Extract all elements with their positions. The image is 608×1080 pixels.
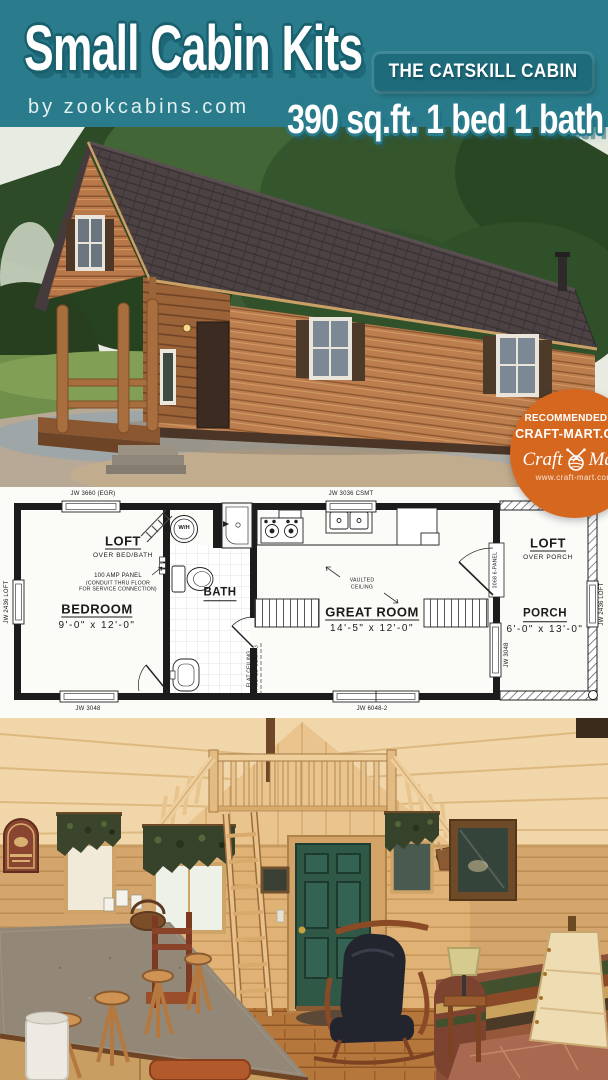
badge-recommended-by: RECOMMENDED BY <box>510 413 608 424</box>
window-right <box>384 811 440 892</box>
panel-note-sub2: FOR SERVICE CONNECTION) <box>79 587 157 592</box>
ceiling-cabinet <box>576 718 608 738</box>
logo-craft-text: Craft <box>522 449 562 471</box>
floor-plan: JW 3660 (EGR) JW 3036 CSMT LOFT OVER BED… <box>0 487 608 718</box>
wall-picture <box>450 820 516 900</box>
window-label-top-left: JW 3660 (EGR) <box>71 491 116 497</box>
vaulted-note-2: CEILING <box>351 585 373 590</box>
room-sub-loft-right: OVER PORCH <box>523 555 573 562</box>
front-window-glass <box>163 353 173 401</box>
stovepipe <box>558 255 567 291</box>
badge-website: www.craft-mart.com <box>510 473 608 482</box>
yarn-ball-icon <box>564 448 588 472</box>
small-picture-frame <box>262 868 288 892</box>
room-label-bath: BATH <box>203 587 236 601</box>
porch-rails <box>500 501 598 701</box>
vaulted-note-1: VAULTED <box>350 578 375 583</box>
entry-door-label: 3068 6-PANEL <box>493 552 498 589</box>
bedroom-dims: 9'-0" x 12'-0" <box>59 621 136 631</box>
refrigerator <box>397 508 439 545</box>
porch-dims: 6'-0" x 13'-0" <box>507 625 584 635</box>
door-knob <box>299 927 306 934</box>
trash-can <box>26 1012 68 1080</box>
range <box>261 510 303 543</box>
great-room-dims: 14'-5" x 12'-0" <box>330 624 414 634</box>
room-label-loft-left: LOFT <box>105 535 141 550</box>
porch-step <box>106 465 186 474</box>
bath-sink <box>170 659 199 691</box>
window-left-1 <box>56 812 122 912</box>
room-label-loft-right: LOFT <box>530 537 566 552</box>
porch-step <box>118 445 178 455</box>
gable-window <box>66 215 114 271</box>
room-sub-loft-left: OVER BED/BATH <box>93 553 153 560</box>
room-label-porch: PORCH <box>523 608 567 622</box>
dining-chair-back <box>150 1060 250 1080</box>
badge-site: CRAFT-MART.COM <box>510 427 608 441</box>
wall-sign <box>4 819 38 872</box>
porch-step <box>112 455 184 465</box>
specs-banner: 390 sq.ft. 1 bed 1 bath <box>287 96 603 143</box>
cabin-pin-image: Small Cabin Kits by zookcabins.com THE C… <box>0 0 608 1080</box>
window-label-bottom-center: JW 6048-2 <box>357 706 388 712</box>
side-window-2 <box>483 334 552 398</box>
model-name-banner: THE CATSKILL CABIN <box>374 54 592 91</box>
window-label-bottom-left: JW 3048 <box>75 706 100 712</box>
ceiling-vaulted-label: VAULTED CEILING <box>254 645 259 693</box>
byline: by zookcabins.com <box>28 96 249 119</box>
porch-post <box>118 303 129 433</box>
porch-post <box>147 299 158 431</box>
craft-mart-logo: Craft Mart <box>510 448 608 472</box>
window-label-left: JW 2436 LOFT <box>4 580 10 623</box>
interior-photo-art <box>0 718 608 1080</box>
shower <box>222 503 252 548</box>
page-title: Small Cabin Kits <box>24 12 362 86</box>
porch-light <box>183 324 191 332</box>
ceiling-flat-label: FLAT CEILING <box>247 651 252 688</box>
electrical-panel <box>160 557 166 574</box>
water-heater-label: W/H <box>178 526 189 532</box>
light-switch <box>277 910 284 922</box>
logo-mart-text: Mart <box>589 449 608 471</box>
side-window-1 <box>296 317 365 381</box>
window-label-right-wall: JW 3048 <box>504 642 510 667</box>
porch-post <box>57 305 68 433</box>
panel-note-title: 100 AMP PANEL <box>94 573 142 579</box>
loft-stairs-right <box>424 599 488 627</box>
interior-photo <box>0 718 608 1080</box>
kitchen <box>257 508 439 545</box>
stovepipe-cap <box>555 252 570 257</box>
room-label-great-room: GREAT ROOM <box>325 606 419 621</box>
window-label-top-center: JW 3036 CSMT <box>329 491 374 497</box>
loft-stairs-left <box>255 599 319 627</box>
room-label-bedroom: BEDROOM <box>61 603 132 618</box>
front-door <box>197 322 229 428</box>
window-label-porch-right: JW 2436 LOFT <box>599 582 605 625</box>
